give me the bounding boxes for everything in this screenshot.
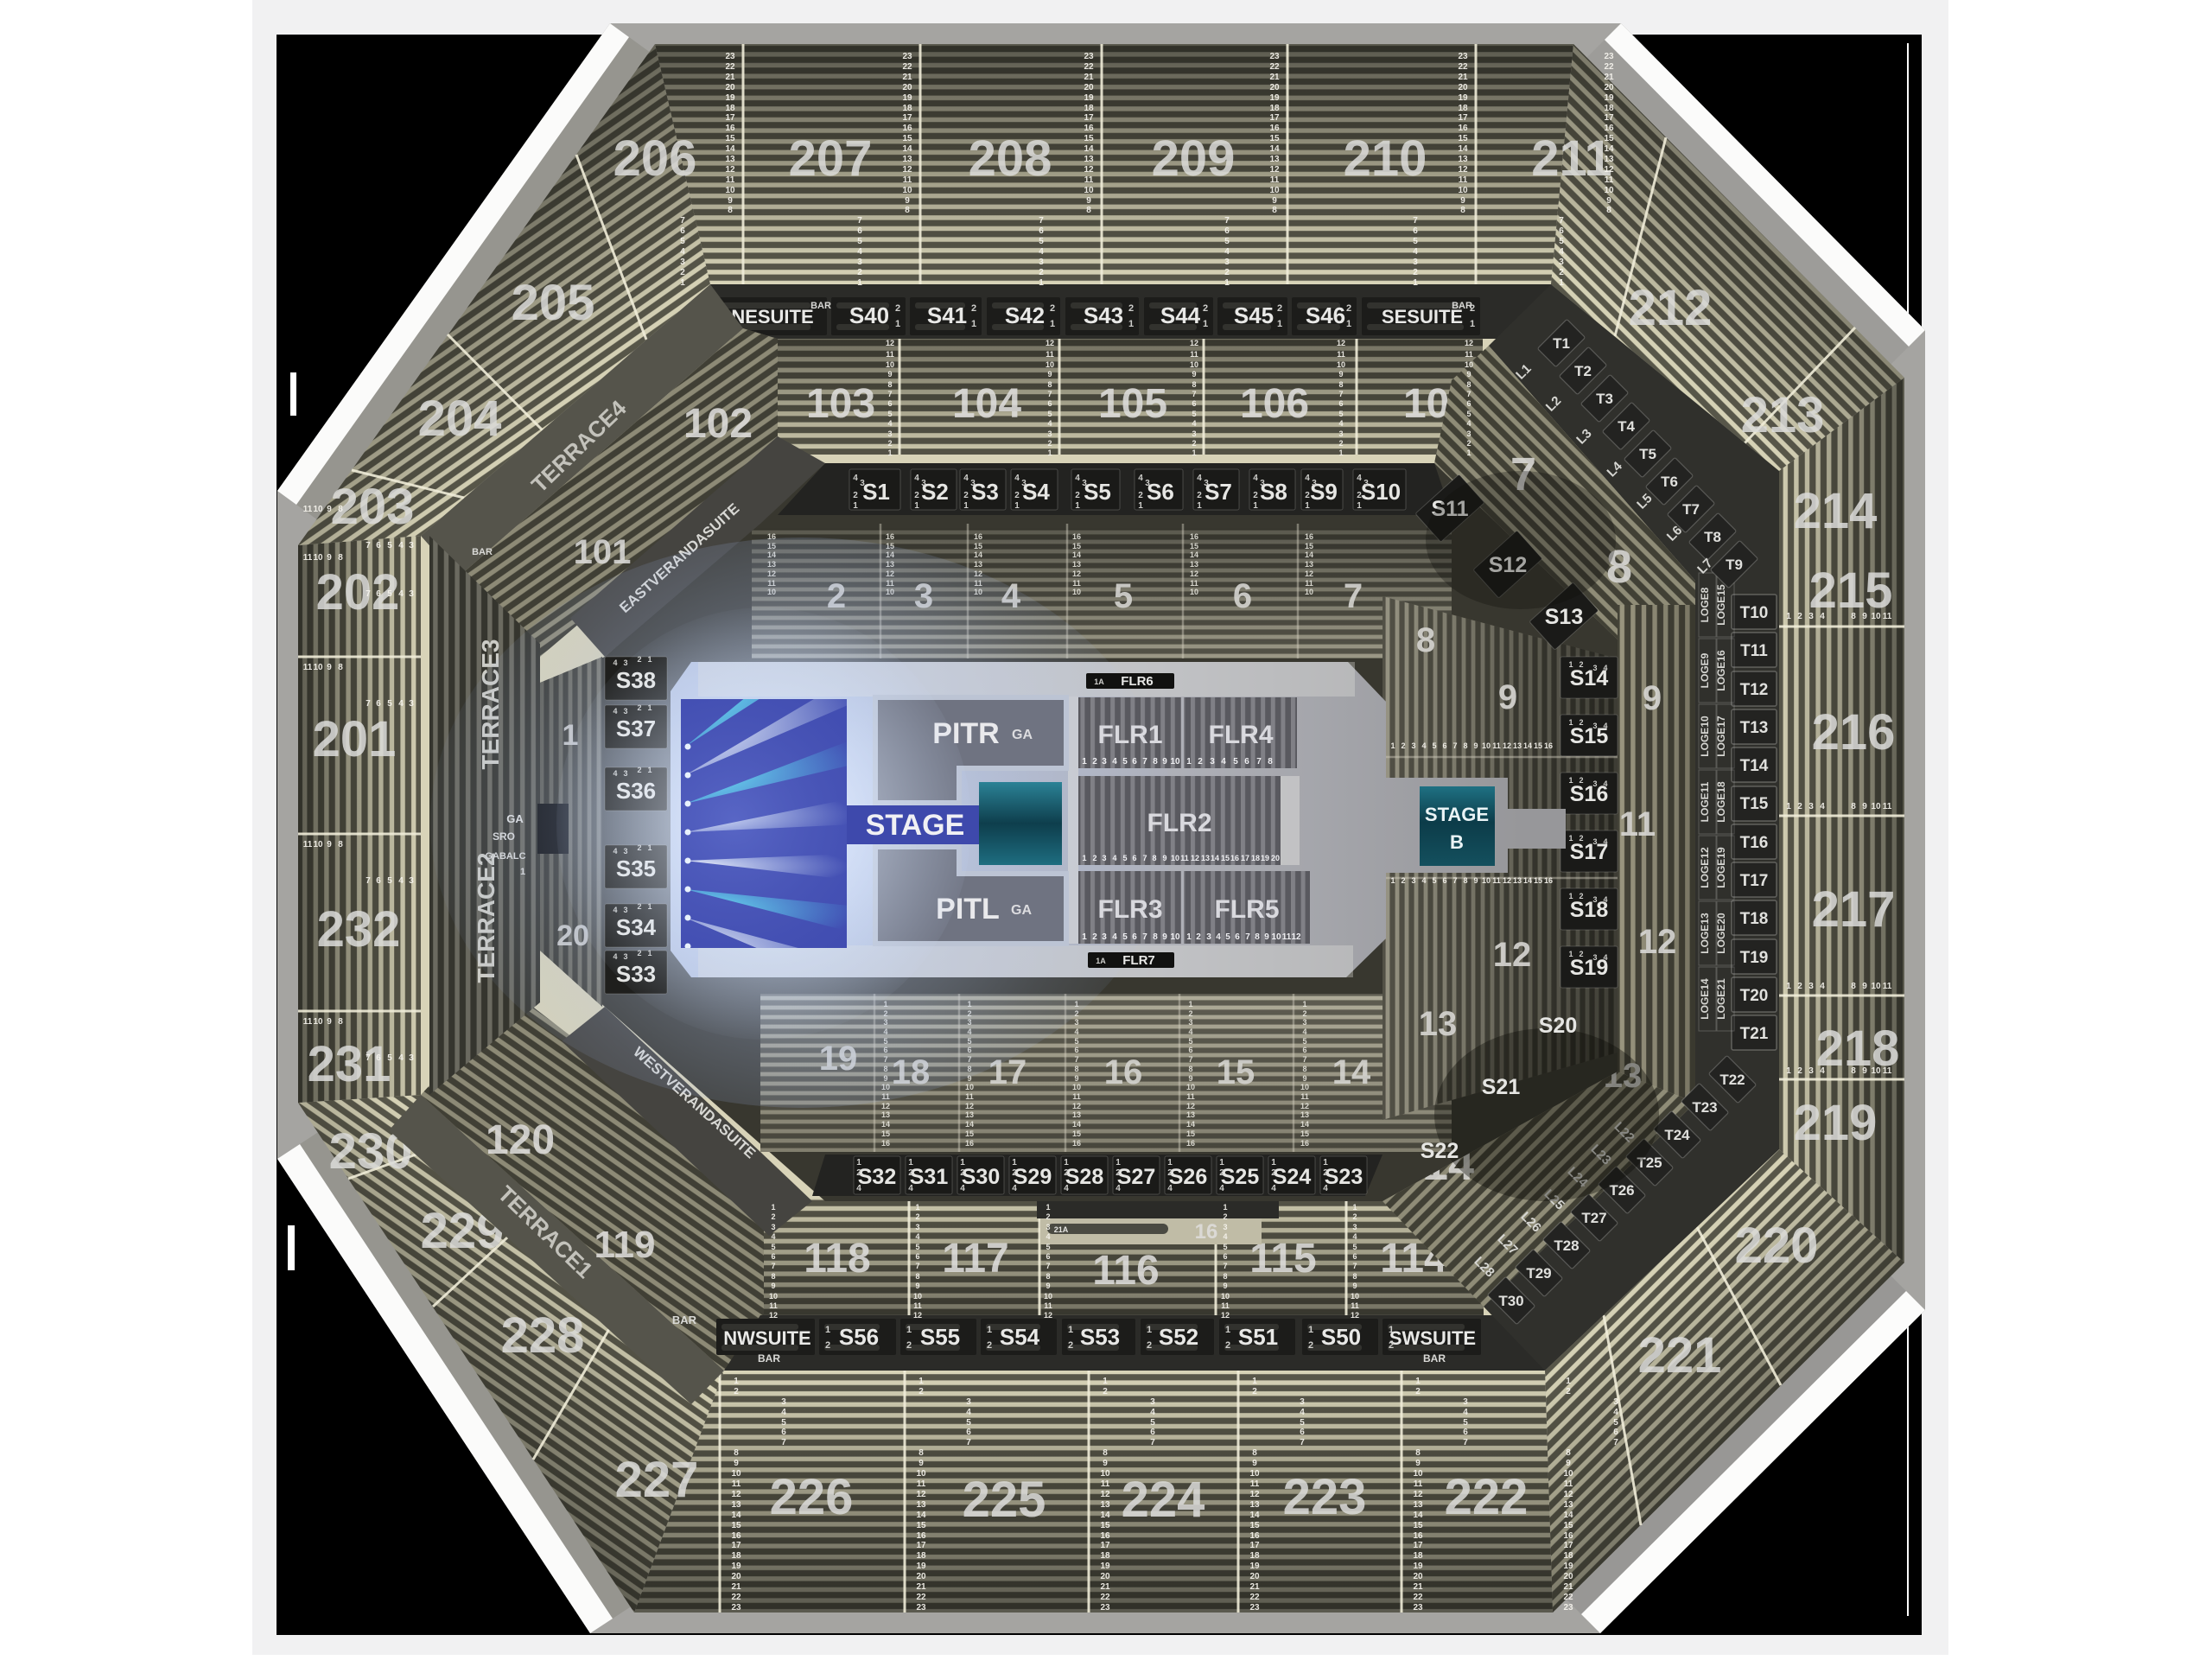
svg-text:3: 3 (1808, 802, 1814, 811)
svg-text:11: 11 (1305, 579, 1313, 588)
svg-text:3: 3 (1150, 1397, 1155, 1407)
svg-text:8: 8 (771, 1272, 775, 1281)
svg-text:3: 3 (1102, 932, 1107, 942)
svg-text:22: 22 (1249, 1593, 1260, 1602)
svg-text:6: 6 (771, 1252, 775, 1261)
svg-text:10: 10 (1046, 360, 1054, 369)
svg-text:9: 9 (1862, 982, 1867, 991)
svg-text:3: 3 (771, 1223, 775, 1231)
svg-text:7: 7 (365, 876, 371, 886)
svg-text:2: 2 (1401, 876, 1405, 885)
svg-text:5: 5 (1188, 1037, 1192, 1046)
svg-text:12: 12 (1300, 1102, 1309, 1110)
svg-text:2: 2 (857, 268, 862, 277)
svg-text:SWSUITE: SWSUITE (1389, 1327, 1476, 1349)
svg-text:7: 7 (1344, 577, 1363, 615)
svg-text:15: 15 (1084, 134, 1094, 143)
svg-text:S28: S28 (1065, 1165, 1104, 1189)
svg-text:19: 19 (1100, 1562, 1110, 1571)
svg-text:1: 1 (1568, 718, 1573, 727)
svg-text:2: 2 (1797, 1066, 1802, 1076)
svg-text:4: 4 (914, 474, 919, 483)
svg-text:10: 10 (1413, 1469, 1423, 1479)
svg-text:9: 9 (1862, 612, 1867, 621)
svg-text:6: 6 (1224, 226, 1230, 236)
svg-text:S24: S24 (1273, 1165, 1312, 1189)
svg-text:2: 2 (971, 303, 976, 314)
svg-text:19: 19 (1563, 1562, 1573, 1571)
svg-text:13: 13 (974, 560, 982, 569)
svg-text:215: 215 (1809, 563, 1893, 619)
svg-text:4: 4 (1603, 664, 1607, 672)
svg-text:3: 3 (1363, 479, 1369, 488)
svg-text:13: 13 (1201, 854, 1210, 862)
svg-text:12: 12 (1190, 339, 1198, 347)
svg-text:14: 14 (1084, 144, 1094, 154)
svg-text:3: 3 (915, 1223, 919, 1231)
svg-text:T20: T20 (1740, 987, 1769, 1005)
svg-text:3: 3 (887, 429, 892, 438)
svg-text:1: 1 (1346, 319, 1351, 329)
svg-text:1: 1 (1082, 757, 1087, 767)
svg-text:4: 4 (1603, 722, 1607, 730)
svg-text:20: 20 (1271, 854, 1280, 862)
svg-text:21: 21 (725, 73, 735, 82)
svg-text:11: 11 (1465, 350, 1473, 359)
svg-text:17: 17 (1241, 854, 1249, 862)
svg-text:T3: T3 (1596, 391, 1613, 407)
svg-text:11: 11 (1492, 876, 1501, 885)
svg-text:8: 8 (1103, 1448, 1108, 1458)
svg-text:101: 101 (574, 533, 632, 571)
svg-text:13: 13 (1604, 155, 1614, 164)
svg-text:12: 12 (965, 1102, 974, 1110)
svg-text:12: 12 (1100, 1490, 1110, 1499)
svg-text:16: 16 (1300, 1139, 1309, 1148)
svg-text:4: 4 (1466, 419, 1471, 428)
svg-text:8: 8 (1153, 757, 1158, 767)
svg-text:15: 15 (1221, 854, 1230, 862)
svg-text:11: 11 (1072, 1092, 1081, 1101)
svg-text:4: 4 (1047, 419, 1052, 428)
svg-text:11: 11 (917, 1479, 926, 1489)
svg-text:1: 1 (825, 1325, 830, 1335)
svg-text:4: 4 (1064, 1184, 1069, 1193)
svg-text:9: 9 (1162, 854, 1166, 862)
svg-text:BAR: BAR (672, 1314, 697, 1326)
svg-text:6: 6 (1442, 876, 1446, 885)
svg-text:LOGE13: LOGE13 (1699, 913, 1711, 954)
svg-text:3: 3 (409, 699, 414, 709)
svg-text:T9: T9 (1726, 557, 1743, 573)
svg-text:3: 3 (1192, 429, 1196, 438)
svg-text:2: 2 (1116, 1168, 1121, 1178)
svg-text:9: 9 (1466, 370, 1471, 378)
svg-text:10: 10 (916, 1469, 926, 1479)
svg-text:3: 3 (1047, 429, 1052, 438)
svg-text:FLR3: FLR3 (1098, 895, 1163, 924)
svg-text:18: 18 (1413, 1551, 1423, 1561)
svg-text:2: 2 (963, 491, 969, 500)
svg-text:6: 6 (1046, 1252, 1050, 1261)
svg-text:10: 10 (1337, 360, 1345, 369)
svg-text:S6: S6 (1147, 479, 1174, 505)
svg-text:16: 16 (916, 1531, 926, 1541)
svg-text:8: 8 (1851, 802, 1856, 811)
svg-text:21A: 21A (1054, 1225, 1069, 1234)
svg-text:7: 7 (1047, 390, 1052, 398)
svg-text:12: 12 (731, 1490, 741, 1499)
svg-text:4: 4 (1603, 895, 1607, 904)
svg-text:3: 3 (1352, 1223, 1357, 1231)
svg-text:16: 16 (1269, 124, 1280, 133)
svg-text:S54: S54 (1000, 1324, 1040, 1350)
svg-text:10: 10 (1190, 360, 1198, 369)
svg-text:20: 20 (916, 1572, 926, 1581)
svg-text:15: 15 (1534, 741, 1542, 750)
svg-text:2: 2 (1559, 268, 1564, 277)
svg-text:2: 2 (1075, 491, 1080, 500)
svg-text:8: 8 (1851, 612, 1856, 621)
svg-text:7: 7 (1142, 854, 1147, 862)
svg-text:5: 5 (1413, 237, 1418, 246)
svg-text:104: 104 (952, 381, 1021, 427)
svg-text:LOGE11: LOGE11 (1699, 781, 1711, 822)
svg-text:11: 11 (1084, 175, 1094, 185)
svg-text:7: 7 (1192, 390, 1196, 398)
svg-text:6: 6 (1352, 1252, 1357, 1261)
svg-text:6: 6 (680, 226, 685, 236)
svg-text:7: 7 (887, 390, 892, 398)
svg-text:3: 3 (1302, 1018, 1306, 1027)
svg-text:6: 6 (1233, 577, 1252, 615)
svg-text:7: 7 (365, 589, 371, 599)
svg-text:1: 1 (915, 1203, 919, 1212)
svg-text:1: 1 (1352, 1203, 1357, 1212)
svg-text:10: 10 (1482, 876, 1491, 885)
svg-text:1A: 1A (1096, 957, 1106, 965)
svg-text:13: 13 (1513, 876, 1522, 885)
svg-text:212: 212 (1629, 280, 1713, 336)
svg-text:S55: S55 (920, 1324, 960, 1350)
svg-text:14: 14 (902, 144, 912, 154)
svg-text:21: 21 (1604, 73, 1614, 82)
svg-text:2: 2 (1167, 1168, 1173, 1178)
svg-text:4: 4 (1039, 247, 1044, 257)
svg-text:S27: S27 (1117, 1165, 1155, 1189)
svg-text:11: 11 (1282, 932, 1292, 942)
svg-text:T29: T29 (1526, 1265, 1551, 1282)
svg-text:8: 8 (918, 1448, 924, 1458)
svg-text:S43: S43 (1084, 302, 1123, 328)
svg-text:4: 4 (1603, 953, 1607, 962)
svg-text:9: 9 (1498, 678, 1517, 716)
svg-text:12: 12 (1458, 165, 1468, 175)
svg-text:14: 14 (1458, 144, 1468, 154)
svg-text:3: 3 (1223, 1223, 1227, 1231)
svg-text:5: 5 (857, 237, 862, 246)
svg-text:1: 1 (1338, 448, 1343, 457)
svg-text:22: 22 (1604, 62, 1614, 72)
svg-text:T15: T15 (1740, 795, 1769, 813)
svg-text:4: 4 (1075, 474, 1080, 483)
svg-text:18: 18 (731, 1551, 741, 1561)
svg-text:3: 3 (1082, 479, 1087, 488)
svg-text:8: 8 (1415, 1448, 1421, 1458)
svg-text:213: 213 (1741, 387, 1825, 443)
svg-text:10: 10 (886, 360, 894, 369)
svg-text:6: 6 (1235, 932, 1240, 942)
svg-text:2: 2 (1128, 303, 1134, 314)
svg-text:228: 228 (501, 1307, 585, 1364)
svg-text:23: 23 (916, 1603, 926, 1613)
svg-text:13: 13 (1072, 560, 1081, 569)
svg-text:12: 12 (1563, 1490, 1573, 1499)
svg-text:14: 14 (965, 1120, 974, 1129)
svg-text:10: 10 (1186, 1083, 1195, 1091)
svg-text:2: 2 (1579, 834, 1583, 843)
svg-text:11: 11 (1619, 805, 1656, 843)
svg-text:16: 16 (1458, 124, 1468, 133)
svg-text:9: 9 (1338, 370, 1343, 378)
svg-text:7: 7 (1039, 216, 1044, 226)
svg-text:9: 9 (1046, 1282, 1050, 1290)
svg-text:3: 3 (409, 1053, 414, 1063)
svg-text:4: 4 (963, 474, 969, 483)
svg-text:11: 11 (1414, 1479, 1423, 1489)
svg-text:7: 7 (1046, 1262, 1050, 1270)
svg-text:5: 5 (1122, 932, 1128, 942)
svg-text:14: 14 (1523, 876, 1532, 885)
svg-text:13: 13 (1269, 155, 1280, 164)
svg-text:4: 4 (915, 1232, 919, 1241)
svg-text:S22: S22 (1421, 1139, 1459, 1163)
svg-text:15: 15 (974, 542, 982, 550)
svg-text:1: 1 (1197, 501, 1202, 511)
svg-text:8: 8 (1268, 757, 1273, 767)
svg-text:9: 9 (771, 1282, 775, 1290)
svg-text:7: 7 (1559, 216, 1564, 226)
svg-text:16: 16 (886, 532, 894, 541)
svg-text:3: 3 (857, 258, 862, 267)
svg-text:6: 6 (1302, 1046, 1306, 1054)
svg-text:15: 15 (916, 1521, 926, 1530)
svg-text:9: 9 (915, 1282, 919, 1290)
svg-text:3: 3 (1145, 479, 1150, 488)
svg-text:5: 5 (387, 1053, 392, 1063)
svg-text:3: 3 (1210, 757, 1215, 767)
svg-text:S4: S4 (1022, 479, 1050, 505)
svg-text:106: 106 (1240, 381, 1309, 427)
svg-text:7: 7 (857, 216, 862, 226)
svg-text:2: 2 (853, 491, 858, 500)
svg-text:19: 19 (1249, 1562, 1260, 1571)
svg-text:S53: S53 (1080, 1324, 1120, 1350)
svg-text:16: 16 (881, 1139, 890, 1148)
svg-text:11: 11 (1564, 1479, 1573, 1489)
svg-text:11: 11 (303, 840, 313, 849)
svg-text:1: 1 (1075, 501, 1080, 511)
svg-text:1: 1 (887, 448, 892, 457)
svg-text:8: 8 (1352, 1272, 1357, 1281)
svg-text:S51: S51 (1238, 1324, 1278, 1350)
svg-text:14: 14 (1332, 1053, 1371, 1091)
svg-text:2: 2 (1092, 854, 1096, 862)
svg-text:4: 4 (1820, 982, 1825, 991)
svg-text:3: 3 (1074, 1018, 1078, 1027)
svg-text:8: 8 (915, 1272, 919, 1281)
svg-text:5: 5 (781, 1418, 786, 1428)
svg-text:1: 1 (1068, 1325, 1073, 1335)
svg-text:216: 216 (1812, 704, 1896, 760)
svg-text:9: 9 (1252, 1459, 1257, 1468)
svg-text:1: 1 (856, 1158, 861, 1167)
svg-text:9: 9 (1473, 876, 1478, 885)
svg-text:11: 11 (1883, 982, 1892, 991)
svg-text:12: 12 (902, 165, 912, 175)
svg-text:8: 8 (1851, 982, 1856, 991)
svg-text:4: 4 (1421, 876, 1426, 885)
svg-text:15: 15 (965, 1129, 974, 1138)
svg-text:2: 2 (960, 1168, 965, 1178)
svg-text:209: 209 (1152, 130, 1236, 187)
svg-text:18: 18 (1249, 1551, 1260, 1561)
svg-text:17: 17 (1269, 113, 1280, 123)
svg-text:12: 12 (1351, 1311, 1359, 1320)
svg-text:11: 11 (1459, 175, 1468, 185)
svg-text:3: 3 (1808, 1066, 1814, 1076)
svg-text:16: 16 (1072, 532, 1081, 541)
svg-text:23: 23 (1458, 52, 1468, 61)
svg-text:2: 2 (1050, 303, 1055, 314)
svg-text:5: 5 (1613, 1418, 1618, 1428)
svg-text:S23: S23 (1325, 1165, 1363, 1189)
svg-text:7: 7 (1074, 1055, 1078, 1064)
svg-text:9: 9 (327, 505, 332, 514)
svg-text:4: 4 (1559, 247, 1564, 257)
svg-text:LOGE18: LOGE18 (1715, 781, 1727, 823)
svg-text:2: 2 (680, 268, 685, 277)
svg-text:2: 2 (918, 1387, 924, 1396)
svg-text:22: 22 (725, 62, 735, 72)
svg-text:3: 3 (680, 258, 685, 267)
svg-text:20: 20 (1413, 1572, 1423, 1581)
svg-text:3: 3 (409, 876, 414, 886)
svg-text:1: 1 (1308, 1325, 1313, 1335)
svg-text:6: 6 (1047, 399, 1052, 408)
svg-text:8: 8 (1223, 1272, 1227, 1281)
svg-text:1: 1 (1219, 1158, 1224, 1167)
svg-text:14: 14 (1604, 144, 1614, 154)
svg-text:5: 5 (1352, 1243, 1357, 1251)
svg-text:22: 22 (1458, 62, 1468, 72)
svg-text:19: 19 (1413, 1562, 1423, 1571)
svg-text:23: 23 (1100, 1603, 1110, 1613)
svg-text:201: 201 (313, 711, 397, 767)
svg-text:10: 10 (1072, 1083, 1081, 1091)
svg-text:3: 3 (1102, 757, 1107, 767)
svg-text:23: 23 (1084, 52, 1094, 61)
svg-text:4: 4 (1197, 474, 1202, 483)
svg-text:16: 16 (1305, 532, 1313, 541)
svg-text:S46: S46 (1306, 302, 1345, 328)
svg-text:14: 14 (1072, 550, 1081, 559)
svg-text:12: 12 (1072, 569, 1081, 578)
svg-text:T11: T11 (1740, 642, 1768, 660)
svg-text:9: 9 (327, 1017, 332, 1027)
svg-text:11: 11 (1300, 1092, 1309, 1101)
svg-text:2: 2 (1225, 1340, 1230, 1351)
svg-text:5: 5 (1300, 1418, 1305, 1428)
svg-text:4: 4 (398, 541, 404, 550)
svg-text:221: 221 (1638, 1327, 1722, 1384)
svg-text:5: 5 (387, 589, 392, 599)
svg-text:2: 2 (1223, 1212, 1227, 1221)
svg-text:2: 2 (1357, 491, 1362, 500)
svg-text:1: 1 (1305, 501, 1310, 511)
svg-text:118: 118 (804, 1236, 870, 1282)
svg-text:S7: S7 (1205, 479, 1232, 505)
svg-text:3: 3 (1224, 258, 1230, 267)
svg-text:18: 18 (916, 1551, 926, 1561)
svg-text:13: 13 (902, 155, 912, 164)
svg-text:1: 1 (1413, 278, 1418, 288)
svg-text:6: 6 (1192, 399, 1196, 408)
svg-text:T19: T19 (1740, 949, 1769, 967)
svg-text:7: 7 (1142, 757, 1147, 767)
svg-text:16: 16 (1544, 741, 1553, 750)
svg-text:BAR: BAR (1423, 1352, 1446, 1364)
svg-text:11: 11 (1186, 1092, 1195, 1101)
svg-text:13: 13 (1249, 1500, 1260, 1510)
svg-text:4: 4 (1352, 1232, 1357, 1241)
svg-text:15: 15 (725, 134, 735, 143)
svg-text:4: 4 (966, 1408, 971, 1417)
svg-text:8: 8 (1460, 206, 1465, 215)
svg-text:12: 12 (1604, 165, 1614, 175)
svg-text:116: 116 (1092, 1248, 1159, 1294)
svg-text:23: 23 (725, 52, 735, 61)
svg-text:2: 2 (915, 1212, 919, 1221)
svg-text:23: 23 (1413, 1603, 1423, 1613)
svg-text:1: 1 (1223, 1203, 1227, 1212)
svg-text:11: 11 (1337, 350, 1345, 359)
svg-text:2: 2 (1197, 491, 1202, 500)
svg-text:10: 10 (1072, 588, 1081, 596)
svg-text:13: 13 (1458, 155, 1468, 164)
svg-text:11: 11 (965, 1092, 974, 1101)
svg-text:1: 1 (1786, 612, 1791, 621)
svg-text:23: 23 (1604, 52, 1614, 61)
svg-text:LOGE12: LOGE12 (1699, 847, 1711, 888)
svg-text:S31: S31 (910, 1165, 949, 1189)
svg-text:4: 4 (1224, 247, 1230, 257)
svg-text:4: 4 (1357, 474, 1362, 483)
svg-text:12: 12 (1084, 165, 1094, 175)
svg-text:23: 23 (1249, 1603, 1260, 1613)
svg-text:8: 8 (1606, 206, 1611, 215)
svg-text:11: 11 (1883, 612, 1892, 621)
svg-text:1: 1 (853, 501, 858, 511)
svg-text:LOGE10: LOGE10 (1699, 716, 1711, 757)
svg-text:18: 18 (1100, 1551, 1110, 1561)
svg-text:12: 12 (886, 339, 894, 347)
svg-text:8: 8 (1046, 1272, 1050, 1281)
svg-text:19: 19 (725, 93, 735, 103)
svg-text:15: 15 (1269, 134, 1280, 143)
svg-text:211: 211 (1531, 130, 1612, 187)
svg-text:20: 20 (1458, 83, 1468, 92)
